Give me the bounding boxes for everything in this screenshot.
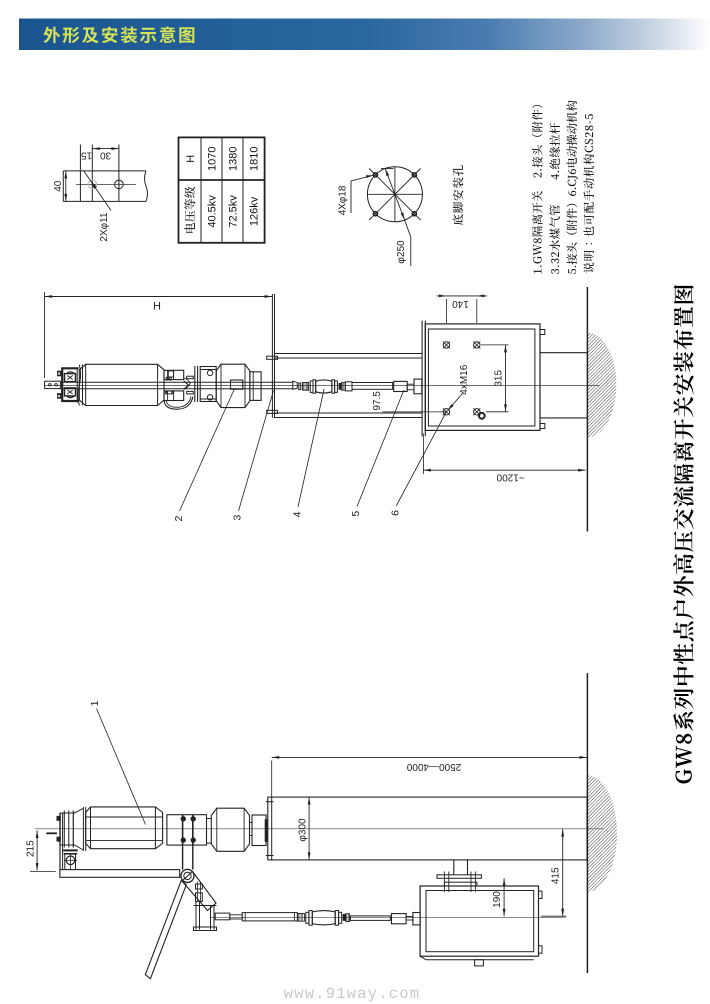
- svg-text:φ300: φ300: [298, 818, 309, 842]
- svg-text:2Xφ11: 2Xφ11: [99, 212, 110, 242]
- svg-text:1: 1: [89, 700, 101, 706]
- svg-text:40: 40: [53, 180, 64, 192]
- svg-text:H: H: [185, 155, 197, 163]
- svg-text:215: 215: [25, 840, 36, 857]
- svg-text:H: H: [153, 301, 161, 313]
- svg-text:415: 415: [550, 867, 561, 884]
- svg-text:4: 4: [291, 511, 303, 517]
- svg-text:1810: 1810: [249, 146, 261, 170]
- svg-text:126kv: 126kv: [249, 196, 261, 226]
- svg-text:~1200: ~1200: [496, 471, 525, 482]
- svg-text:97.5: 97.5: [372, 391, 383, 411]
- svg-text:6: 6: [390, 510, 402, 516]
- svg-text:72.5kv: 72.5kv: [227, 195, 239, 228]
- svg-text:2: 2: [173, 516, 185, 522]
- svg-text:1380: 1380: [227, 146, 239, 170]
- svg-text:30: 30: [100, 149, 112, 160]
- svg-text:4Xφ18: 4Xφ18: [337, 185, 348, 215]
- svg-text:3: 3: [232, 515, 244, 521]
- svg-text:φ250: φ250: [396, 240, 407, 264]
- svg-text:315: 315: [493, 370, 504, 387]
- svg-text:190: 190: [492, 891, 503, 908]
- svg-text:1070: 1070: [206, 146, 218, 170]
- svg-text:2500—4000: 2500—4000: [406, 761, 461, 772]
- svg-text:4xM16: 4xM16: [459, 364, 470, 394]
- svg-text:140: 140: [452, 298, 469, 309]
- svg-text:40.5kv: 40.5kv: [206, 195, 218, 228]
- svg-text:5: 5: [350, 511, 362, 517]
- svg-text:15: 15: [81, 149, 93, 160]
- svg-text:www.91way.com: www.91way.com: [284, 985, 421, 1003]
